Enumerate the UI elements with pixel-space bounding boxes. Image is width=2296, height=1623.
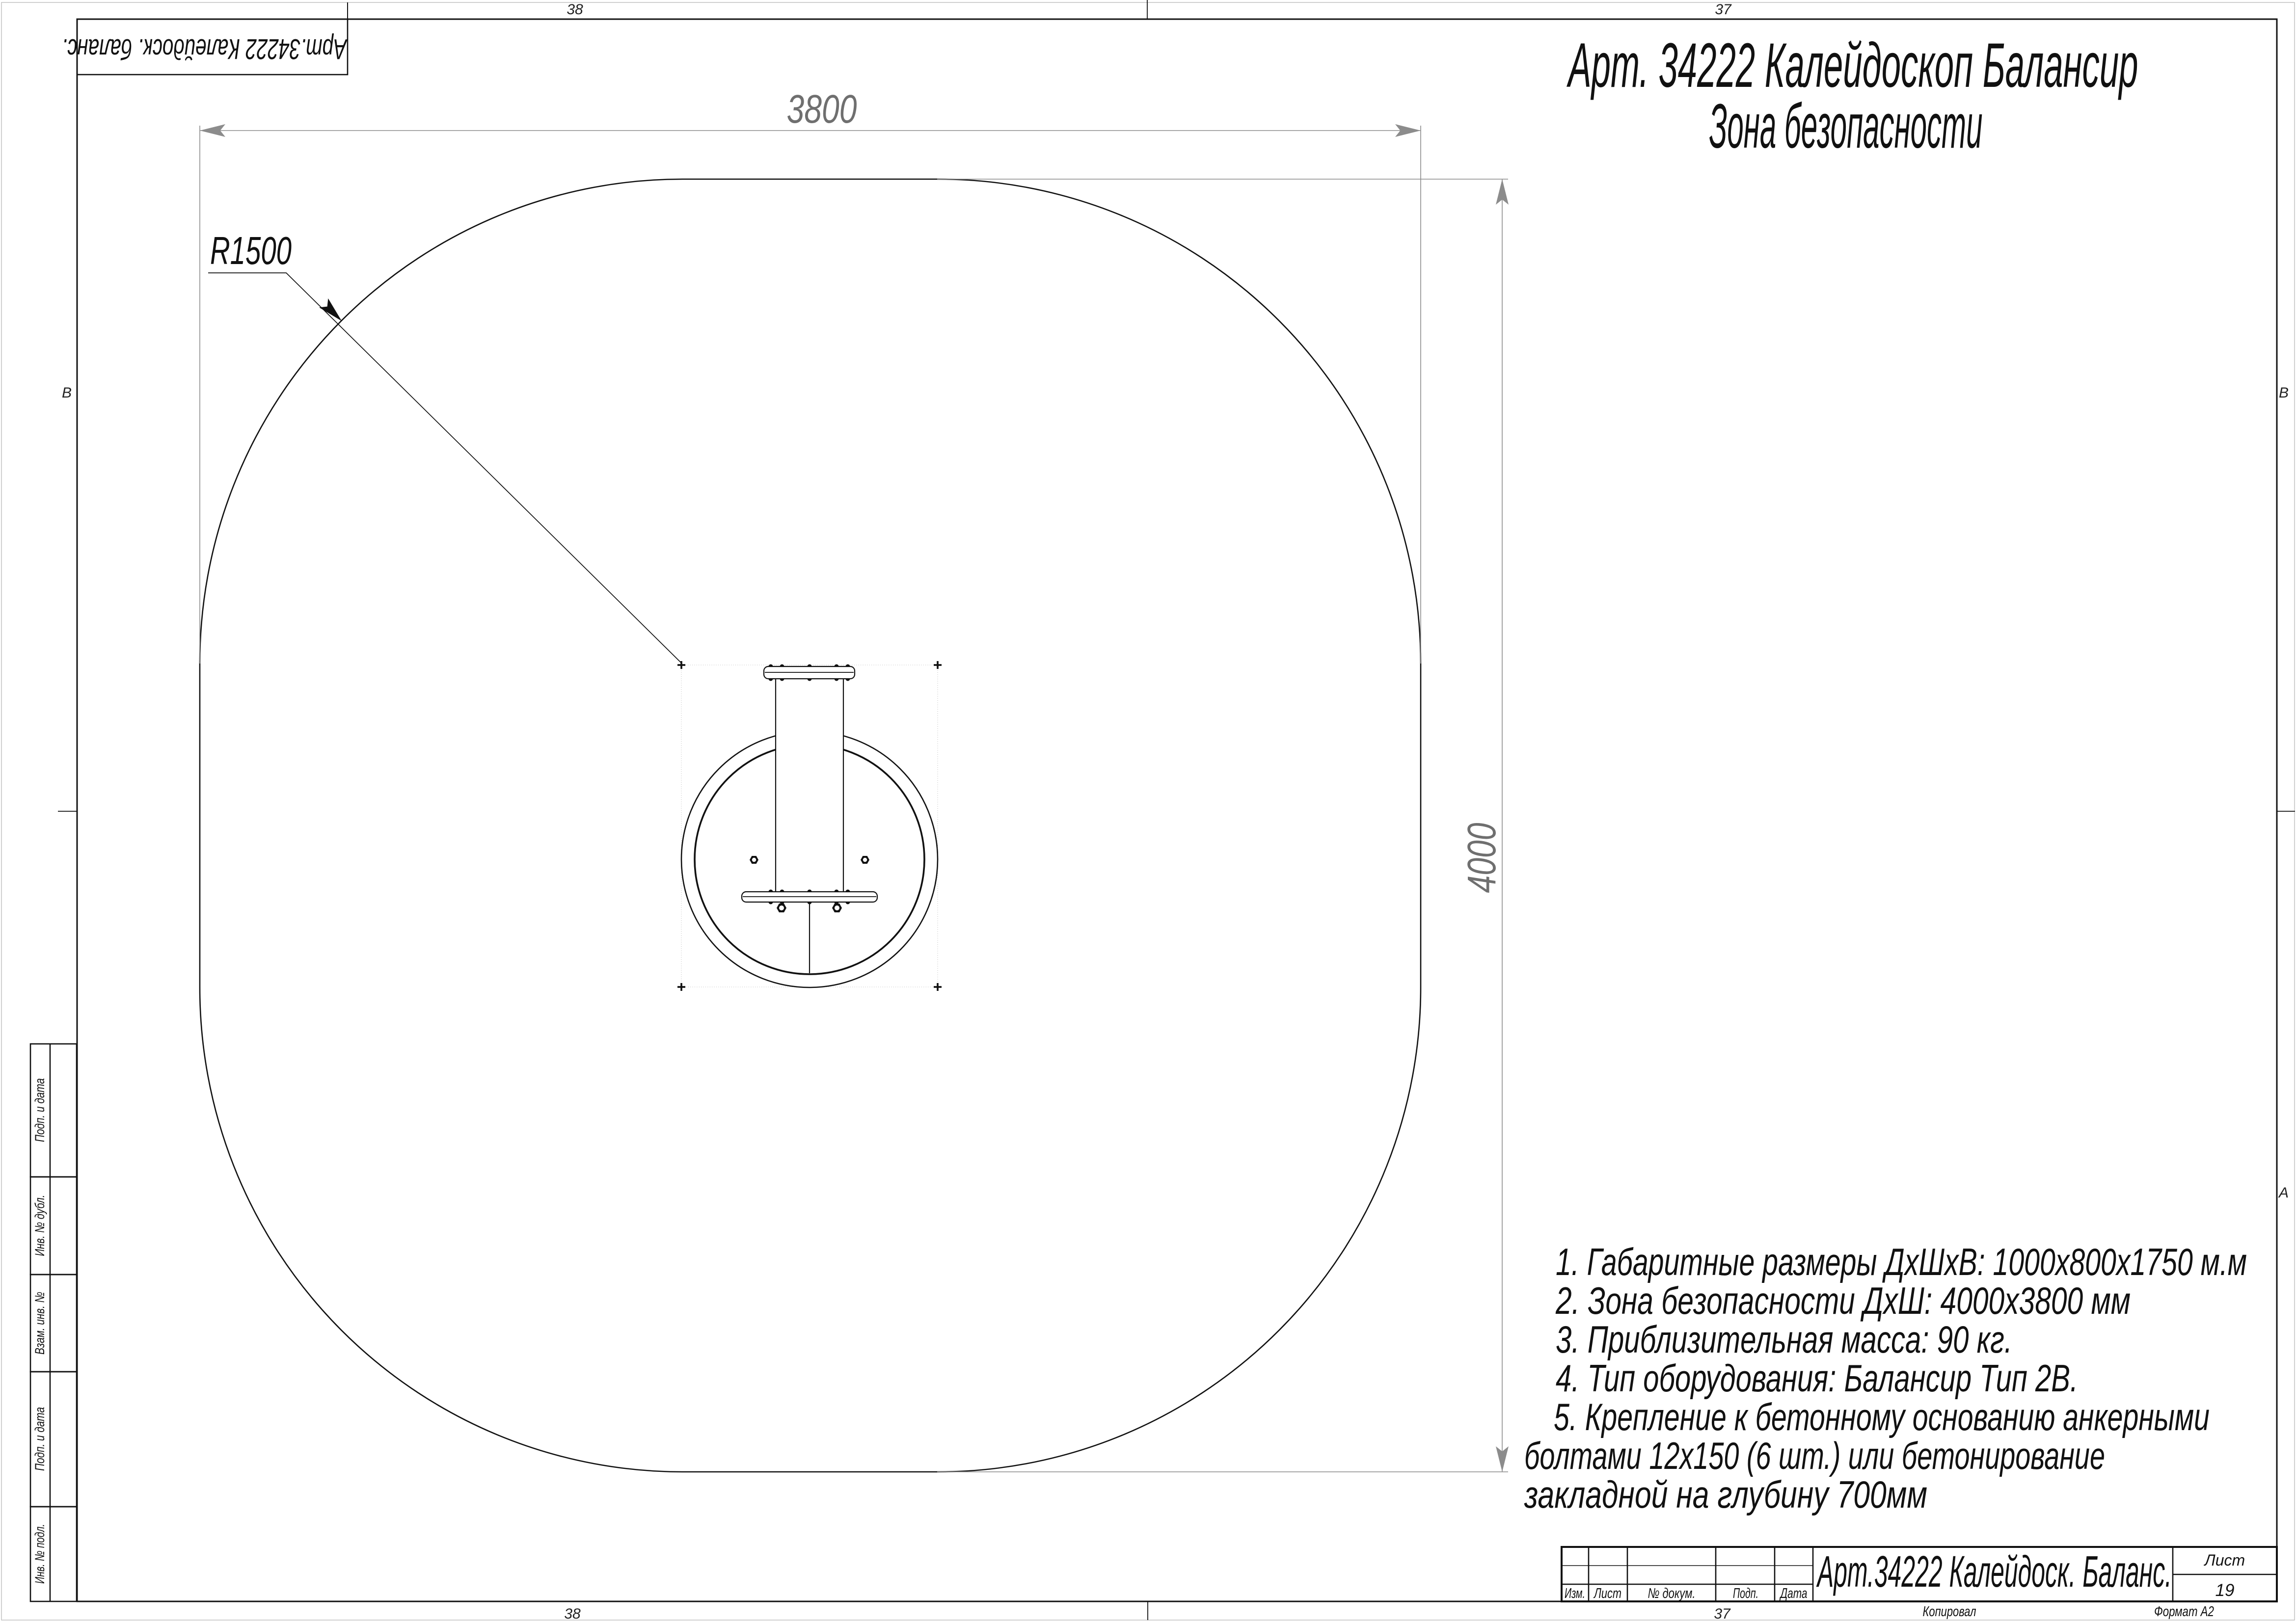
svg-text:4. Тип оборудования: Балансир: 4. Тип оборудования: Балансир Тип 2В.: [1556, 1357, 2078, 1400]
svg-text:Дата: Дата: [1779, 1586, 1807, 1601]
svg-text:Лист: Лист: [1594, 1586, 1622, 1601]
svg-text:3. Приблизительная масса: 90 к: 3. Приблизительная масса: 90 кг.: [1556, 1318, 2012, 1361]
svg-text:1. Габаритные размеры ДхШхВ: 1: 1. Габаритные размеры ДхШхВ: 1000х800х17…: [1556, 1240, 2247, 1283]
svg-text:Подп.: Подп.: [1733, 1586, 1758, 1601]
svg-text:38: 38: [567, 1, 583, 18]
svg-text:38: 38: [564, 1606, 581, 1622]
svg-text:B: B: [62, 385, 72, 401]
svg-text:Подп. и дата: Подп. и дата: [32, 1078, 47, 1142]
svg-text:B: B: [2279, 385, 2289, 401]
svg-text:Арт.34222 Калейдоск. баланс.: Арт.34222 Калейдоск. баланс.: [62, 33, 348, 65]
svg-text:R1500: R1500: [210, 229, 292, 272]
svg-text:A: A: [2278, 1185, 2289, 1201]
svg-text:Взам. инв. №: Взам. инв. №: [32, 1292, 47, 1355]
svg-text:Арт. 34222 Калейдоскоп Баланси: Арт. 34222 Калейдоскоп Балансир: [1567, 30, 2138, 101]
svg-text:закладной на глубину 700мм: закладной на глубину 700мм: [1524, 1473, 1927, 1516]
svg-text:Инв. № подл.: Инв. № подл.: [32, 1524, 47, 1584]
svg-text:Арт.34222 Калейдоск. Баланс.: Арт.34222 Калейдоск. Баланс.: [1816, 1547, 2172, 1596]
svg-text:4000: 4000: [1459, 823, 1504, 893]
svg-text:Лист: Лист: [2204, 1551, 2245, 1569]
svg-text:19: 19: [2215, 1581, 2235, 1600]
svg-text:Инв. № дубл.: Инв. № дубл.: [32, 1195, 47, 1256]
svg-text:Формат А2: Формат А2: [2154, 1604, 2214, 1620]
svg-text:37: 37: [1714, 1606, 1731, 1622]
svg-text:Зона безопасности: Зона безопасности: [1709, 91, 1983, 161]
svg-text:№ докум.: № докум.: [1648, 1586, 1696, 1601]
svg-text:Изм.: Изм.: [1565, 1586, 1585, 1601]
svg-text:37: 37: [1715, 1, 1732, 18]
svg-text:Копировал: Копировал: [1923, 1604, 1976, 1620]
svg-text:болтами 12х150 (6 шт.) или бет: болтами 12х150 (6 шт.) или бетонирование: [1524, 1434, 2105, 1477]
svg-text:Подп. и дата: Подп. и дата: [32, 1407, 47, 1471]
svg-text:2. Зона безопасности ДхШ: 4000: 2. Зона безопасности ДхШ: 4000х3800 мм: [1555, 1279, 2131, 1322]
svg-text:5. Крепление к бетонному основ: 5. Крепление к бетонному основанию анкер…: [1554, 1395, 2210, 1438]
svg-text:3800: 3800: [787, 87, 857, 132]
